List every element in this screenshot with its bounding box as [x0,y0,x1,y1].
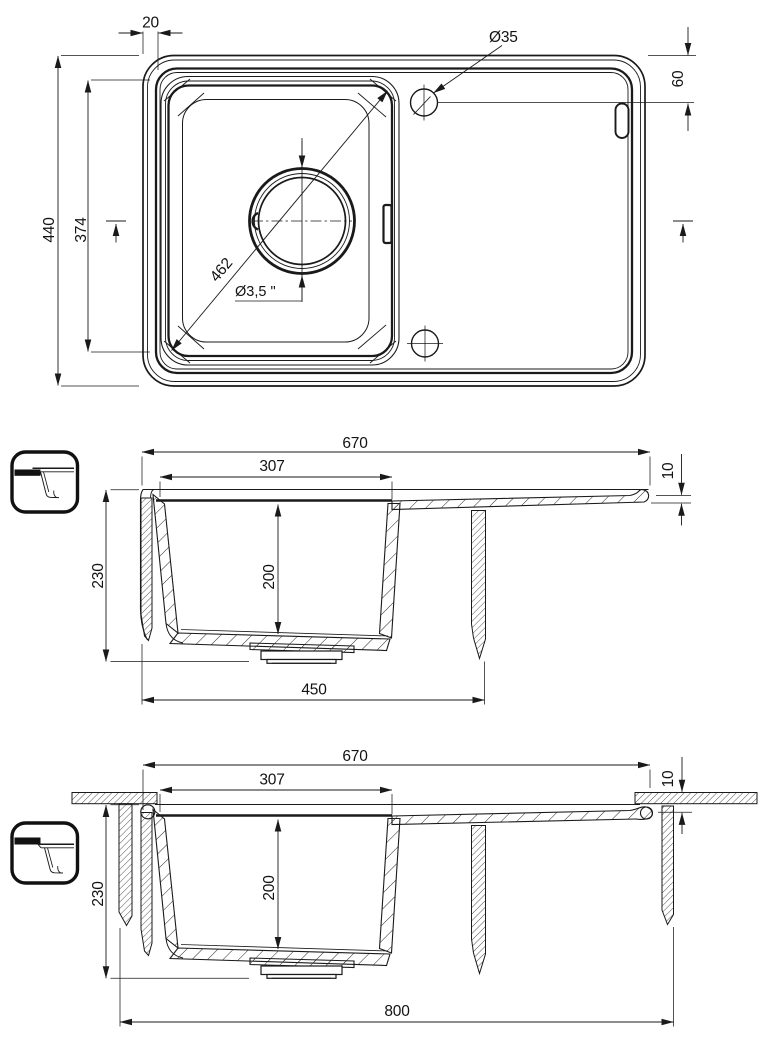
dim-flush-670-label: 670 [342,748,368,765]
dim-bowl-width-label: 374 [73,217,90,243]
drain [235,138,355,302]
countertop-left [72,793,157,804]
dim-inset-450-label: 450 [301,682,327,699]
flush-mount-icon [12,823,78,883]
dim-hole-edge-label: 60 [670,70,687,87]
section-view-inset: 670 307 230 200 450 10 [12,435,691,705]
dim-rim-width-label: 20 [142,15,159,32]
overflow-slot-bowl [384,205,392,243]
drain-trap-inset [250,643,354,663]
dim-rim-width [119,32,183,71]
faucet-hole-top [411,46,695,121]
dim-flush-230-label: 230 [90,881,107,907]
overflow-slot-drainer [616,104,629,139]
sink-section-inset [141,490,649,664]
dim-inset-10-label: 10 [660,462,677,479]
dim-drain-diameter-label: Ø3,5 " [235,284,276,300]
section-view-flush: 670 307 230 200 800 10 [12,748,757,1027]
dim-hole-diameter-label: Ø35 [489,29,518,46]
under-rib-flush [472,826,486,974]
dim-flush-800-label: 800 [384,1003,410,1020]
dim-inset-200-label: 200 [261,564,278,590]
under-rib [472,511,486,659]
cabinet-wall-left [119,804,132,926]
dim-flush-10-label: 10 [660,770,677,787]
dim-flush-307 [160,790,392,815]
cabinet-wall-right [662,806,674,925]
drain-trap-flush [250,958,354,978]
sink-outline [143,56,645,387]
dim-flush-200-label: 200 [261,875,278,901]
dim-inset-307-label: 307 [259,458,284,475]
countertop-right [635,793,757,804]
dim-inset-670-label: 670 [342,435,368,452]
dim-flush-670 [143,765,650,810]
dim-overall-width [58,56,139,387]
dim-inset-670 [142,452,650,486]
sink-section-flush [141,805,653,979]
faucet-hole-bottom [407,326,443,362]
rim-inner-edge [156,69,632,374]
dim-inset-307 [160,477,392,500]
dim-overall-width-label: 440 [41,217,58,243]
drawing-page: 20 Ø35 60 440 374 462 Ø3,5 " [0,0,770,1050]
dim-diagonal-label: 462 [207,255,236,285]
sink-technical-drawing: 20 Ø35 60 440 374 462 Ø3,5 " [0,0,770,1050]
dim-bowl-width [88,80,150,352]
plan-view: 20 Ø35 60 440 374 462 Ø3,5 " [41,15,696,387]
inset-mount-icon [12,452,78,512]
dim-inset-230-label: 230 [90,563,107,589]
dim-flush-307-label: 307 [259,772,284,789]
